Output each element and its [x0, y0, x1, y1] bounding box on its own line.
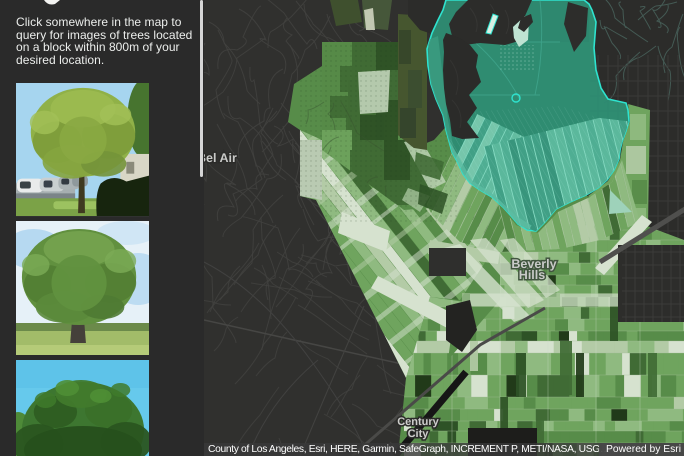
svg-text:Hills: Hills	[519, 268, 545, 282]
svg-text:Bel Air: Bel Air	[204, 151, 237, 165]
svg-text:Century: Century	[397, 416, 439, 428]
svg-text:City: City	[408, 428, 430, 440]
